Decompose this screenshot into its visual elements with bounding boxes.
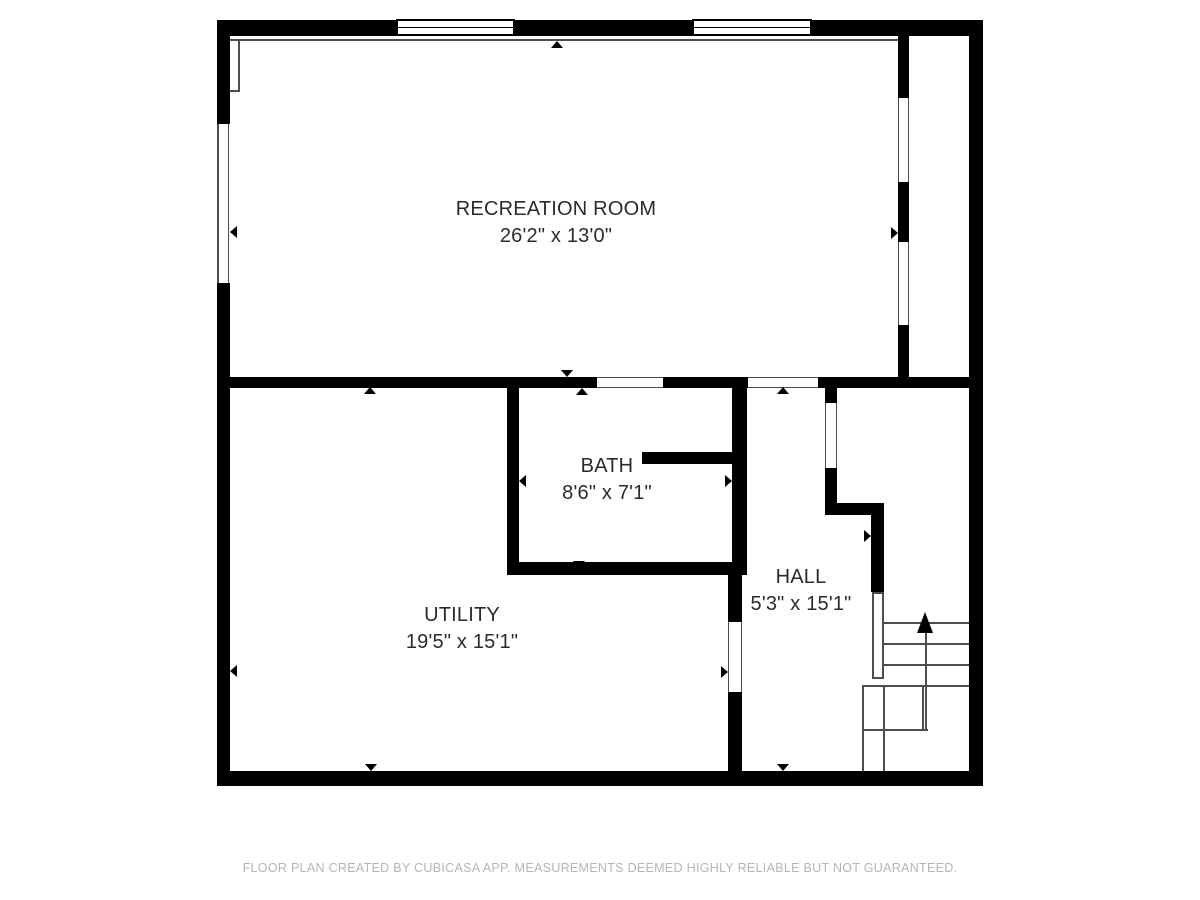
corner-notch-line-v [238,39,240,92]
window-1 [396,19,515,36]
measure-arrow-right-icon [864,530,871,542]
door-opening-line [597,387,663,388]
measure-arrow-left-icon [230,226,237,238]
wall-inner-right-a [898,36,909,98]
stair-tread [884,664,969,666]
ceiling-edge-line [230,39,898,41]
wall-hall-door-stub [825,388,837,403]
wall-inner-right-c [898,325,909,377]
measure-arrow-up-icon [364,387,376,394]
room-name: HALL [651,564,951,591]
stairs-up-arrow-shaft [925,633,927,730]
opening-line [908,98,909,182]
wall-inner-right-b [898,182,909,242]
measure-arrow-right-icon [721,666,728,678]
room-label-recreation: RECREATION ROOM 26'2" x 13'0" [406,196,706,250]
measure-arrow-left-icon [230,665,237,677]
wall-divider-a [217,377,597,388]
room-dimensions: 26'2" x 13'0" [406,223,706,250]
measure-arrow-down-icon [365,764,377,771]
wall-hall-mid [825,468,837,503]
stair-landing-line [862,729,928,731]
window-glass-line [398,27,513,29]
door-opening-line [836,403,837,468]
stair-edge-line [862,685,864,771]
measure-arrow-up-icon [576,388,588,395]
opening-line [228,124,230,283]
floor-plan: RECREATION ROOM 26'2" x 13'0" BATH 8'6" … [0,0,1200,900]
stair-tread [884,643,969,645]
room-label-utility: UTILITY 19'5" x 15'1" [312,602,612,656]
corner-notch-line-h [230,90,240,92]
wall-divider-b [663,377,748,388]
measure-arrow-right-icon [891,227,898,239]
stair-edge-line [883,685,885,771]
footer-disclaimer: FLOOR PLAN CREATED BY CUBICASA APP. MEAS… [0,861,1200,875]
room-label-bath: BATH 8'6" x 7'1" [457,453,757,507]
stair-landing-line [922,685,924,730]
door-opening-line [825,403,826,468]
measure-arrow-down-icon [561,370,573,377]
door-opening-line [741,622,742,692]
opening-line [898,98,899,182]
room-dimensions: 5'3" x 15'1" [651,591,951,618]
door-opening-line [748,377,818,378]
door-opening-line [728,622,729,692]
wall-right [969,20,983,786]
room-name: UTILITY [312,602,612,629]
wall-left-upper [217,20,230,124]
room-name: RECREATION ROOM [406,196,706,223]
measure-arrow-down-icon [573,561,585,568]
opening-line [908,242,909,325]
measure-arrow-up-icon [777,387,789,394]
measure-arrow-down-icon [777,764,789,771]
measure-arrow-up-icon [551,41,563,48]
door-opening-line [597,377,663,378]
room-name: BATH [457,453,757,480]
window-glass-line [694,27,810,29]
wall-divider-c [818,377,983,388]
wall-utility-hall-lower [728,692,742,771]
window-2 [692,19,812,36]
opening-line [898,242,899,325]
room-dimensions: 19'5" x 15'1" [312,629,612,656]
wall-top [217,20,983,36]
wall-hall-step-h [825,503,884,515]
room-label-hall: HALL 5'3" x 15'1" [651,564,951,618]
room-dimensions: 8'6" x 7'1" [457,480,757,507]
wall-bottom [217,771,983,786]
stair-tread [862,685,969,687]
measure-arrow-left-icon [740,530,747,542]
opening-line [217,124,219,283]
wall-left-lower [217,283,230,771]
